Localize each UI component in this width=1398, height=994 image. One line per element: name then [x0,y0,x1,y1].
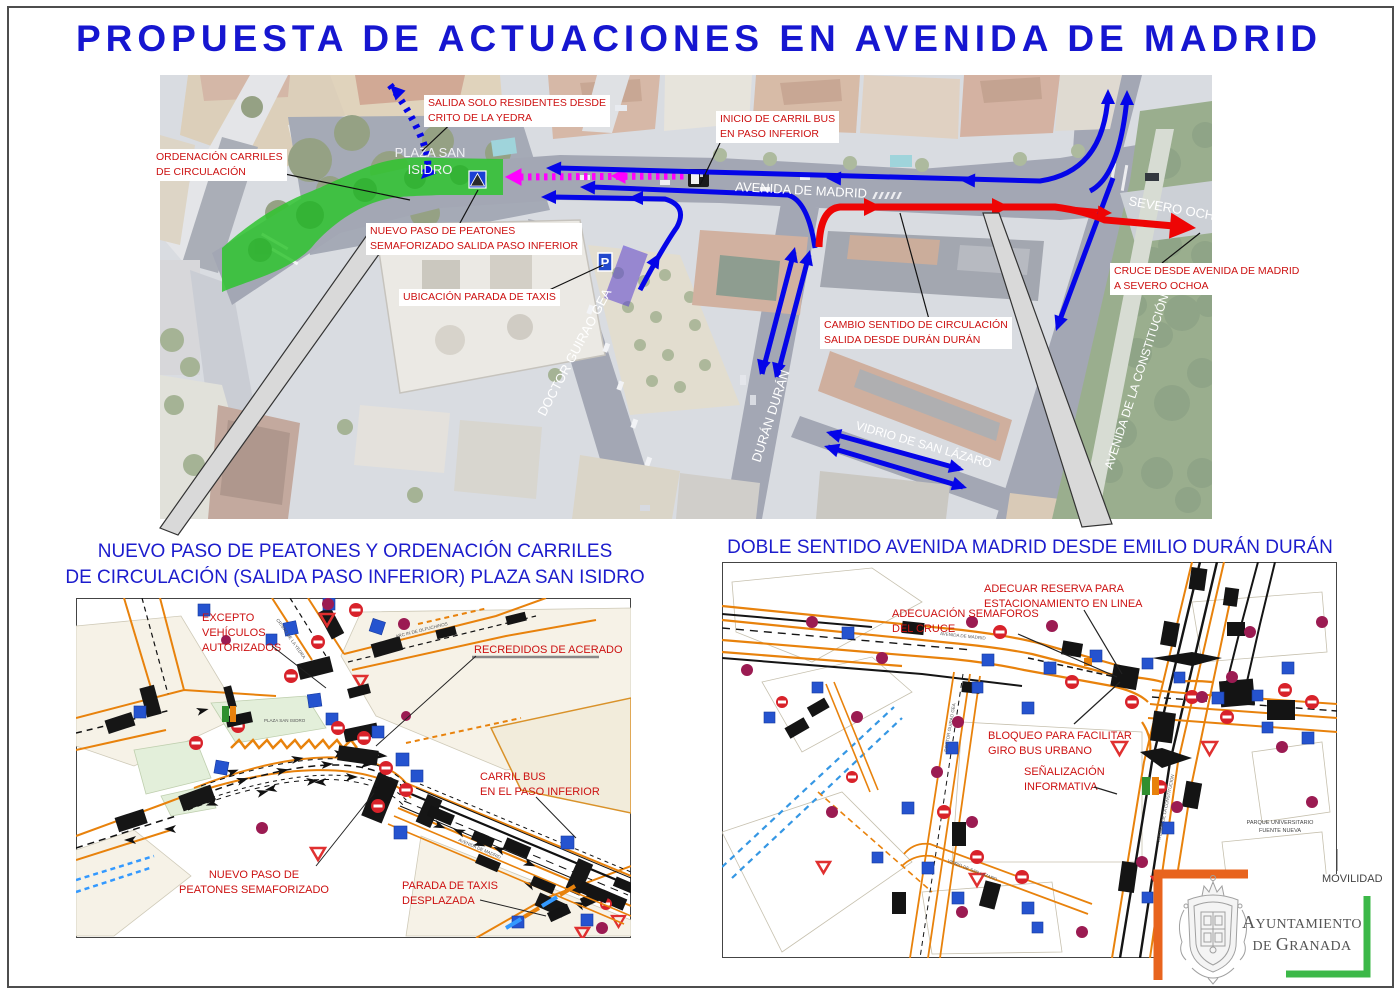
svg-text:PLAZA SAN ISIDRO: PLAZA SAN ISIDRO [264,718,306,723]
svg-text:PARADA DE TAXIS: PARADA DE TAXIS [402,880,498,892]
svg-text:NUEVO PASO DE: NUEVO PASO DE [209,869,299,881]
svg-text:VEHÍCULOS: VEHÍCULOS [202,626,266,639]
svg-text:RECREDIDOS DE ACERADO: RECREDIDOS DE ACERADO [474,644,623,656]
svg-text:EXCEPTO: EXCEPTO [202,612,255,624]
svg-text:SEÑALIZACIÓN: SEÑALIZACIÓN [1024,765,1105,778]
svg-text:ADECUACIÓN SEMAFOROS: ADECUACIÓN SEMAFOROS [892,607,1039,620]
svg-text:BLOQUEO PARA FACILITAR: BLOQUEO PARA FACILITAR [988,730,1132,742]
svg-text:GIRO BUS URBANO: GIRO BUS URBANO [988,745,1092,757]
svg-text:FUENTE NUEVA: FUENTE NUEVA [1259,828,1301,834]
svg-text:PARQUE UNIVERSITARIO: PARQUE UNIVERSITARIO [1247,820,1314,826]
svg-text:INFORMATIVA: INFORMATIVA [1024,781,1098,793]
svg-text:EN EL PASO INFERIOR: EN EL PASO INFERIOR [480,786,600,798]
svg-text:DESPLAZADA: DESPLAZADA [402,895,475,907]
svg-text:AUTORIZADOS: AUTORIZADOS [202,642,281,654]
svg-text:ADECUAR RESERVA PARA: ADECUAR RESERVA PARA [984,583,1125,595]
svg-text:DEL CRUCE: DEL CRUCE [892,623,955,635]
svg-text:CARRIL BUS: CARRIL BUS [480,771,546,783]
svg-text:PEATONES SEMAFORIZADO: PEATONES SEMAFORIZADO [179,884,329,896]
svg-text:MOVILIDAD: MOVILIDAD [1322,873,1383,885]
